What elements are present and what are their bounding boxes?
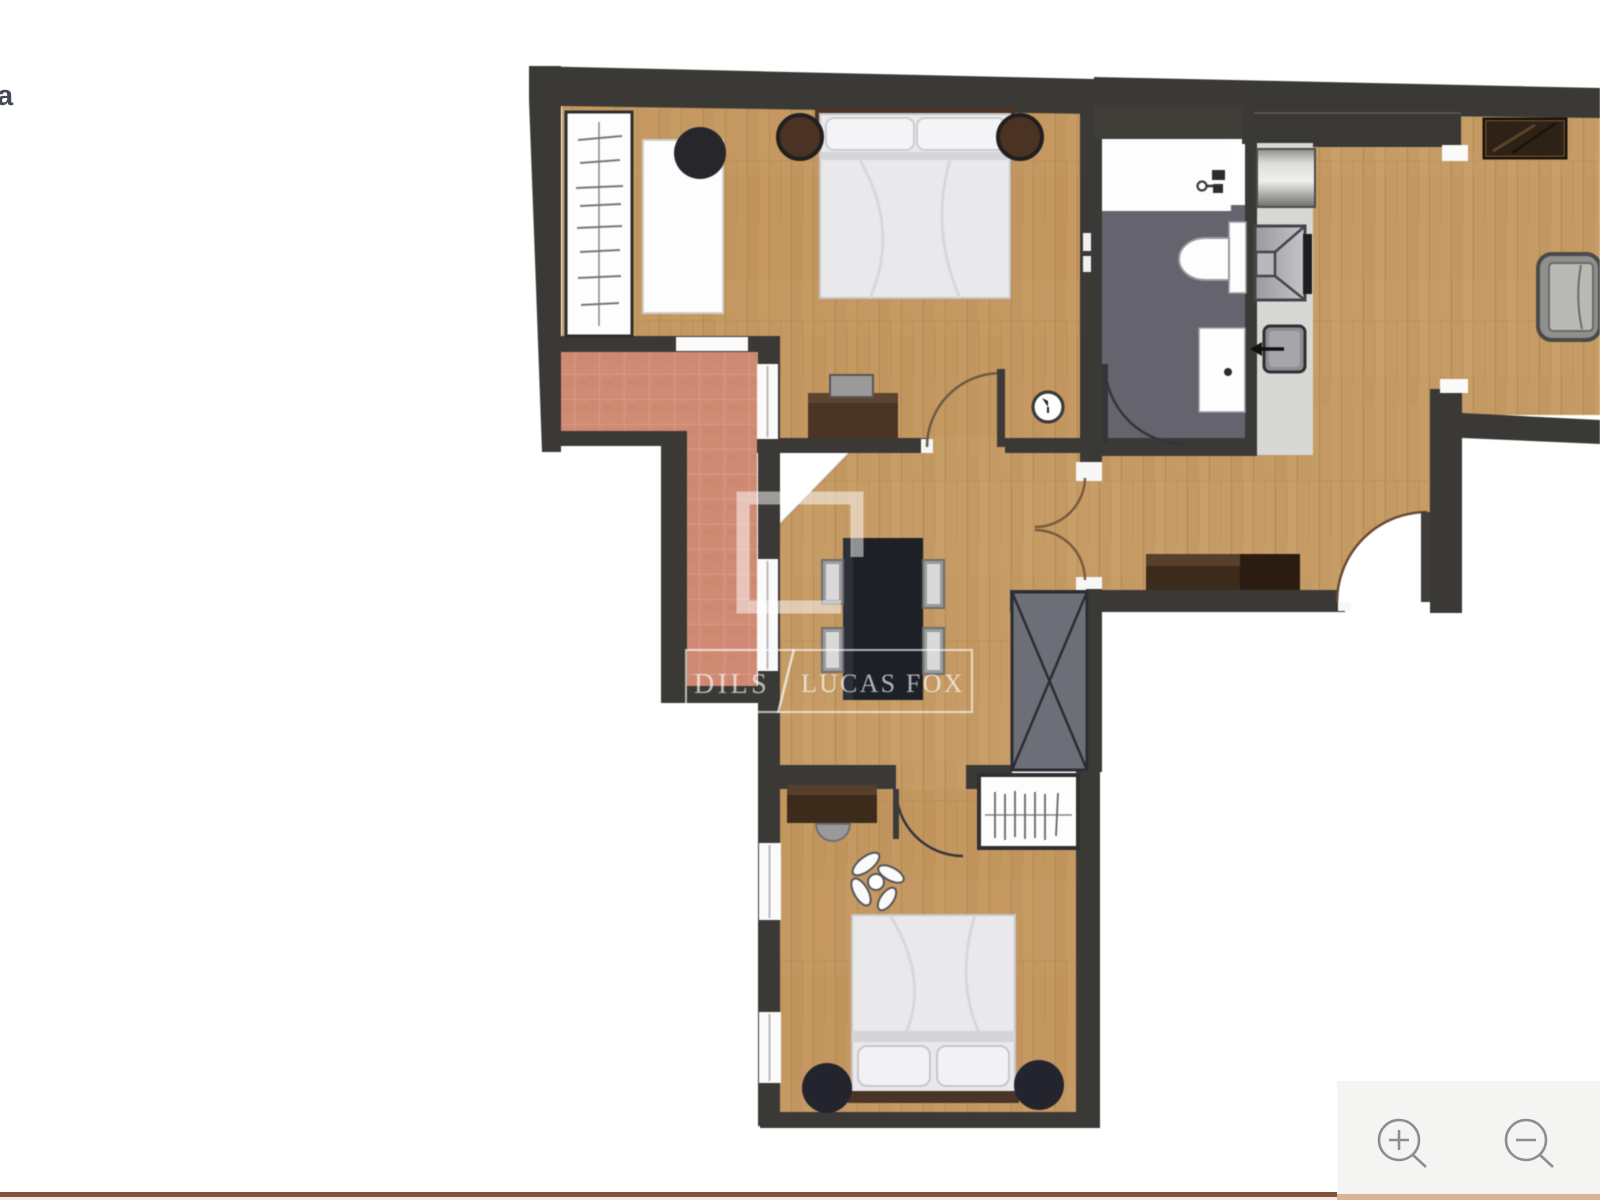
svg-text:LUCAS FOX: LUCAS FOX [801, 669, 965, 698]
svg-text:DILS: DILS [694, 669, 770, 700]
